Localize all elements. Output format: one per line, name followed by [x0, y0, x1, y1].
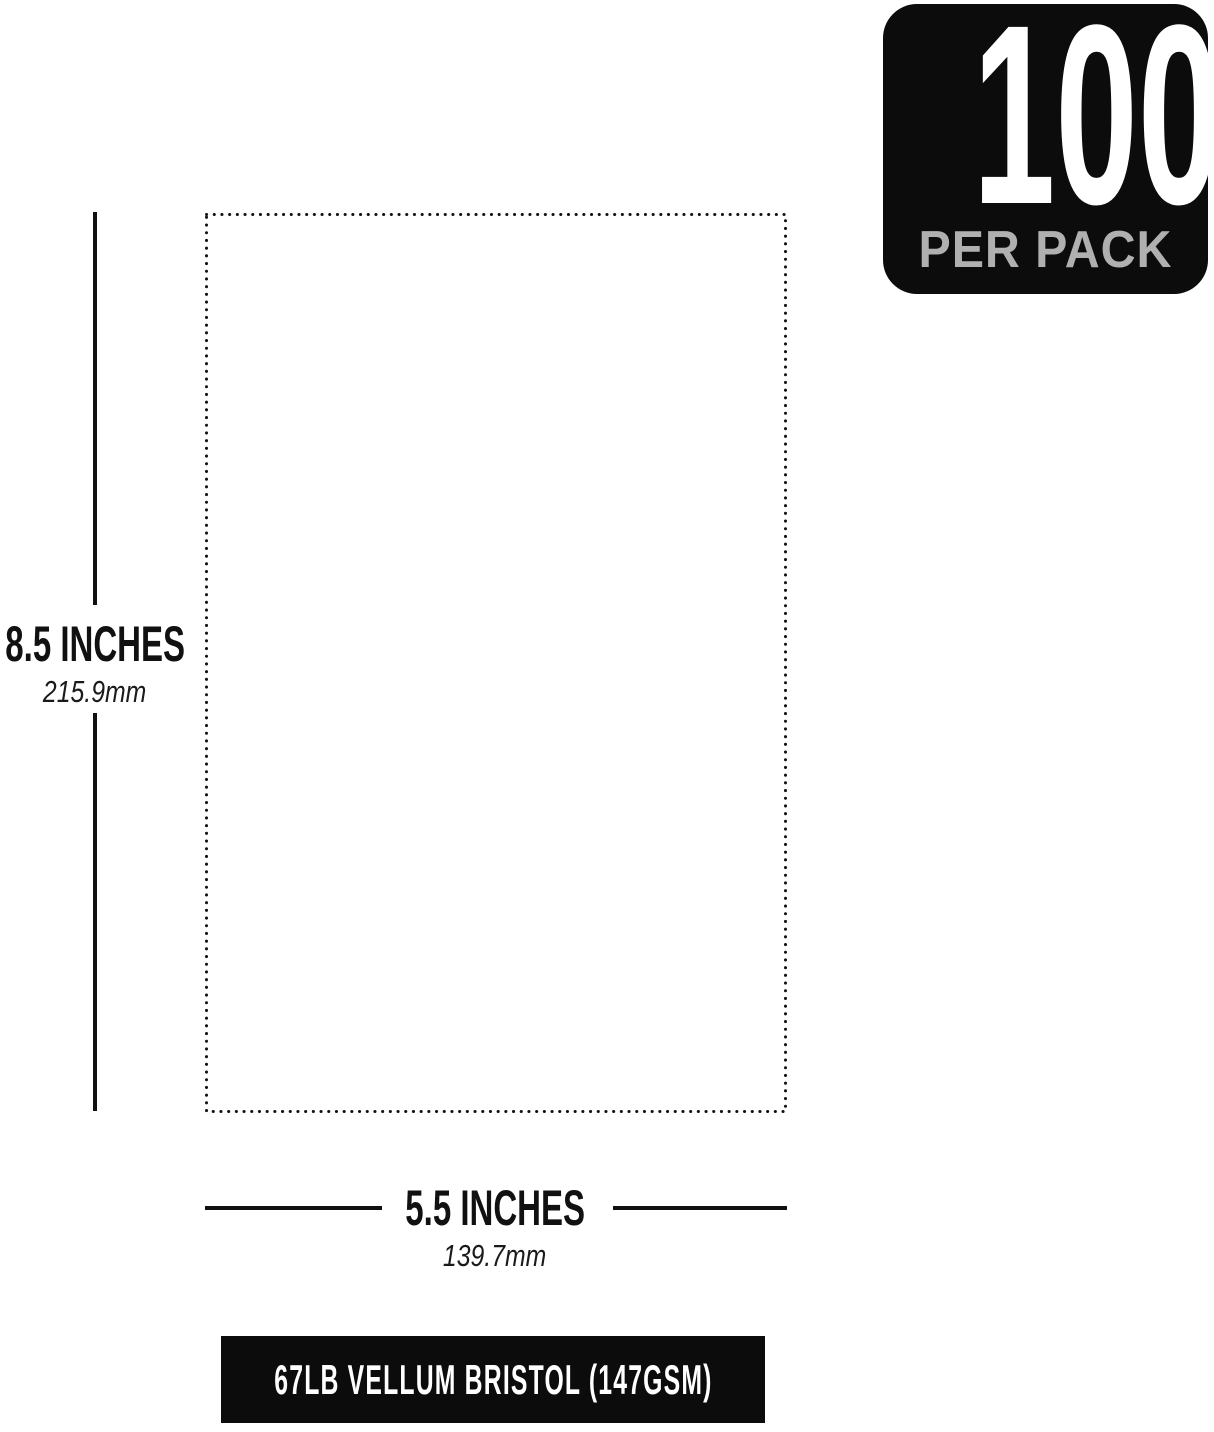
- per-pack-badge: 100 PER PACK: [883, 4, 1208, 294]
- product-dimension-diagram: 8.5 INCHES 215.9mm 5.5 INCHES 139.7mm 10…: [0, 0, 1214, 1432]
- height-inches-label: 8.5 INCHES: [0, 618, 295, 670]
- width-metric-label: 139.7mm: [295, 1239, 695, 1273]
- paper-spec-bar: 67LB VELLUM BRISTOL (147GSM): [221, 1336, 765, 1423]
- height-dimension-line-top: [93, 212, 97, 605]
- width-dimension-label: 5.5 INCHES 139.7mm: [295, 1182, 695, 1273]
- width-inches-label: 5.5 INCHES: [295, 1182, 695, 1234]
- height-dimension-label: 8.5 INCHES 215.9mm: [0, 618, 295, 709]
- paper-spec-label: 67LB VELLUM BRISTOL (147GSM): [274, 1356, 712, 1404]
- pack-count: 100: [883, 0, 1208, 243]
- per-pack-label: PER PACK: [883, 224, 1208, 276]
- height-dimension-line-bottom: [93, 713, 97, 1111]
- height-metric-label: 215.9mm: [0, 675, 295, 709]
